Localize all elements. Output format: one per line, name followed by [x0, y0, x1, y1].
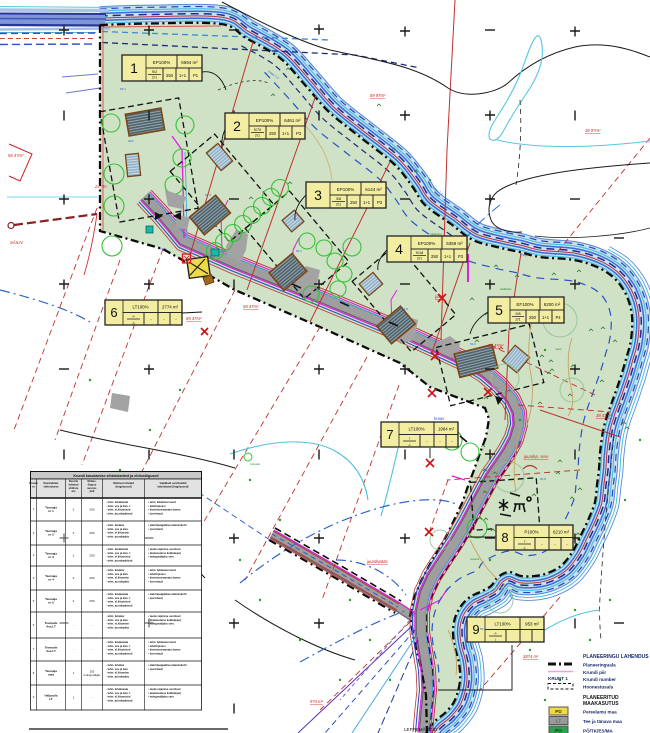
svg-text:58 47m²: 58 47m²	[243, 304, 259, 309]
svg-text:-: -	[73, 648, 74, 652]
svg-text:- tehn. juurdepääs: - tehn. juurdepääs	[106, 534, 130, 538]
svg-text:50.2: 50.2	[480, 627, 486, 631]
svg-text:2/1: 2/1	[417, 257, 422, 261]
svg-text:Suurim: Suurim	[69, 479, 79, 483]
svg-text:6461 m²: 6461 m²	[284, 118, 301, 123]
svg-text:• tehn. lubatava toend: • tehn. lubatava toend	[148, 500, 176, 504]
svg-text:250: 250	[89, 599, 94, 603]
svg-text:• teede rajamise servituut: • teede rajamise servituut	[148, 614, 181, 618]
svg-text:• elektripaigaldise talumiskoh: • elektripaigaldise talumiskoht	[148, 592, 187, 596]
svg-text:- tehn. juurdepääs: - tehn. juurdepääs	[106, 674, 130, 678]
svg-text:6144 m²: 6144 m²	[365, 187, 382, 192]
svg-text:• elektripaigaldise talumiskoh: • elektripaigaldise talumiskoht	[148, 663, 187, 667]
svg-text:Pereelamu maa: Pereelamu maa	[583, 710, 617, 715]
svg-text:- tehn. lubatavate: - tehn. lubatavate	[106, 687, 129, 691]
svg-text:-: -	[92, 648, 93, 652]
svg-text:• (servituut): • (servituut)	[148, 651, 163, 655]
svg-text:P3: P3	[296, 131, 302, 136]
svg-text:PLANEERINGU LAHENDUS: PLANEERINGU LAHENDUS	[583, 654, 649, 660]
svg-text:P1: P1	[193, 73, 199, 78]
svg-text:1+1: 1+1	[363, 200, 371, 205]
svg-text:• (teekasutuse kokkulepe): • (teekasutuse kokkulepe)	[148, 618, 181, 622]
svg-text:SÄILIV: SÄILIV	[10, 240, 24, 245]
svg-text:- tehn. lubatav: - tehn. lubatav	[106, 523, 125, 527]
svg-text:• kinnistusraamatu kanne: • kinnistusraamatu kanne	[148, 576, 181, 580]
svg-text:PD: PD	[555, 709, 562, 714]
svg-text:säilitatav: säilitatav	[500, 287, 512, 291]
svg-text:• mänguväljaku serv.: • mänguväljaku serv.	[148, 622, 175, 626]
svg-text:• mänguväljaku serv.: • mänguväljaku serv.	[148, 555, 175, 559]
svg-text:LEPPEMÄRGID: LEPPEMÄRGID	[404, 726, 438, 732]
svg-text:Krundi kasutamise sihtotstarbe: Krundi kasutamise sihtotstarbed ja ehitu…	[73, 474, 158, 478]
svg-text:2/1: 2/1	[255, 134, 260, 138]
svg-text:- tehn. lubatav: - tehn. lubatav	[106, 568, 125, 572]
svg-text:Tee ja tänava maa: Tee ja tänava maa	[583, 719, 622, 724]
svg-text:6594 m²: 6594 m²	[181, 60, 198, 65]
svg-text:mets: mets	[555, 347, 562, 351]
svg-text:• tuletõrjevesi: • tuletõrjevesi	[148, 504, 166, 508]
svg-text:järk: järk	[89, 489, 95, 493]
svg-text:- tehn. vee ja kan.: - tehn. vee ja kan.	[106, 527, 129, 531]
svg-text:MAAKASUTUS: MAAKASUTUS	[583, 701, 619, 707]
svg-text:-/-: -/-	[132, 320, 136, 325]
svg-text:6210 m²: 6210 m²	[553, 530, 570, 535]
svg-text:1+1: 1+1	[282, 131, 290, 136]
svg-text:9: 9	[472, 622, 479, 637]
svg-text:Krundi piir: Krundi piir	[583, 670, 606, 675]
svg-text:250: 250	[89, 576, 94, 580]
svg-text:ehitiste: ehitiste	[69, 486, 79, 490]
svg-text:pääs: pääs	[434, 294, 445, 299]
svg-text:- tehn. vee ja kan. l.: - tehn. vee ja kan. l.	[106, 504, 131, 508]
svg-text:nr 5: nr 5	[48, 601, 54, 605]
svg-text:LT100%: LT100%	[132, 305, 148, 310]
svg-text:suurus-: suurus-	[87, 486, 97, 490]
svg-text:2774 m²: 2774 m²	[162, 305, 179, 310]
svg-text:• tehn. lubatava toend: • tehn. lubatava toend	[148, 568, 176, 572]
svg-text:- tehn. lubatavate: - tehn. lubatavate	[106, 500, 129, 504]
svg-text:5359 m²: 5359 m²	[446, 241, 463, 246]
svg-text:• tuletõrjevesi: • tuletõrjevesi	[148, 572, 166, 576]
svg-text:- tehn. vee ja kan. l.: - tehn. vee ja kan. l.	[106, 596, 131, 600]
svg-text:5: 5	[495, 302, 503, 318]
svg-text:Ehitus-: Ehitus-	[87, 479, 96, 483]
svg-text:Hoonestusala: Hoonestusala	[583, 685, 614, 690]
svg-text:P4: P4	[555, 315, 561, 320]
svg-text:58 4?m²: 58 4?m²	[8, 153, 24, 158]
svg-text:-: -	[92, 696, 93, 700]
svg-text:LT: LT	[49, 697, 53, 701]
svg-text:Kavandatav: Kavandatav	[43, 481, 59, 485]
svg-text:8: 8	[501, 530, 508, 545]
svg-text:EP100%: EP100%	[418, 241, 436, 246]
svg-text:- tehn. el.liitumine: - tehn. el.liitumine	[106, 531, 129, 535]
svg-text:250: 250	[431, 254, 439, 259]
svg-text:3/8: 3/8	[336, 197, 341, 201]
svg-text:89 47m²: 89 47m²	[186, 316, 202, 321]
svg-text:Vajalikud servituudid: Vajalikud servituudid	[160, 481, 187, 485]
svg-text:4: 4	[395, 241, 403, 257]
svg-text:-/-: -/-	[494, 631, 498, 636]
svg-text:LT: LT	[556, 719, 561, 724]
svg-text:250: 250	[166, 73, 174, 78]
svg-text:puisniit: puisniit	[470, 557, 480, 561]
svg-text:3: 3	[314, 187, 322, 203]
svg-text:• tehn. lubatava toend: • tehn. lubatava toend	[148, 640, 176, 644]
svg-text:250: 250	[90, 670, 95, 674]
svg-text:• (servituut): • (servituut)	[148, 667, 163, 671]
svg-text:250: 250	[89, 554, 94, 558]
svg-text:- tehn. el.liitumine: - tehn. el.liitumine	[106, 576, 129, 580]
svg-text:LT100%: LT100%	[494, 622, 510, 627]
svg-text:õiguse: õiguse	[88, 482, 97, 486]
svg-text:-/-: -/-	[408, 442, 412, 447]
svg-text:50.9: 50.9	[540, 477, 546, 481]
svg-text:7: 7	[386, 427, 393, 442]
svg-text:9/18: 9/18	[416, 251, 423, 255]
svg-text:nr 2: nr 2	[48, 533, 54, 537]
svg-text:9/2: 9/2	[152, 70, 157, 74]
svg-text:- tehn. el.liitumised: - tehn. el.liitumised	[106, 648, 131, 652]
svg-text:6: 6	[110, 305, 117, 320]
svg-text:• (teekasutuse kokkulepe): • (teekasutuse kokkulepe)	[148, 551, 181, 555]
svg-text:- tehn. vee ja kan. l.: - tehn. vee ja kan. l.	[106, 644, 131, 648]
svg-text:juurdep. serv: juurdep. serv	[523, 454, 549, 459]
svg-text:- tehn. juurdepääsud: - tehn. juurdepääsud	[106, 603, 133, 607]
svg-text:- tehn. juurdepääs: - tehn. juurdepääs	[106, 625, 130, 629]
svg-text:53.1: 53.1	[120, 87, 126, 91]
svg-text:6200 m²: 6200 m²	[544, 302, 561, 307]
svg-text:• kinnistusraamatu kanne: • kinnistusraamatu kanne	[148, 508, 181, 512]
svg-text:- tehn. el.liitumised: - tehn. el.liitumised	[106, 695, 131, 699]
svg-text:38 9?m²: 38 9?m²	[585, 128, 601, 133]
svg-text:P3: P3	[377, 200, 383, 205]
svg-text:Olulised nõuded: Olulised nõuded	[113, 481, 134, 485]
svg-text:52.3: 52.3	[205, 193, 211, 197]
svg-text:9/8: 9/8	[515, 312, 520, 316]
svg-text:-/-: -/-	[132, 314, 136, 319]
svg-text:- tehn. lubatavate: - tehn. lubatavate	[106, 640, 129, 644]
svg-text:- tehn. vee ja kan.: - tehn. vee ja kan.	[106, 667, 129, 671]
svg-text:24 ?m: 24 ?m	[94, 184, 107, 189]
svg-text:- tehn. vee ja kan.: - tehn. vee ja kan.	[106, 618, 129, 622]
svg-text:- tehn. vee ja kan.: - tehn. vee ja kan.	[106, 572, 129, 576]
svg-text:EP100%: EP100%	[337, 187, 355, 192]
svg-text:- tehn. juurdepääsud: - tehn. juurdepääsud	[106, 558, 133, 562]
svg-text:Planeeringuala: Planeeringuala	[583, 663, 616, 668]
svg-text:- tehn. juurdepääsud: - tehn. juurdepääsud	[106, 651, 133, 655]
svg-text:• (servituut): • (servituut)	[148, 579, 163, 583]
svg-text:-/-: -/-	[523, 545, 527, 550]
svg-text:2/1: 2/1	[336, 203, 341, 207]
svg-text:- tehn. el.liitumised: - tehn. el.liitumised	[106, 555, 131, 559]
svg-text:EP100%: EP100%	[153, 60, 171, 65]
svg-text:• (teekasutuse kokkulepe): • (teekasutuse kokkulepe)	[148, 691, 181, 695]
svg-text:täiendavad (tingimused): täiendavad (tingimused)	[158, 484, 189, 488]
svg-text:- tehn. el.liitumine: - tehn. el.liitumine	[106, 671, 129, 675]
svg-text:- tehn. juurdepääsud: - tehn. juurdepääsud	[106, 698, 133, 702]
svg-text:953 m²: 953 m²	[525, 622, 539, 627]
svg-text:• (servituut): • (servituut)	[148, 511, 163, 515]
svg-text:nr: nr	[32, 484, 35, 488]
svg-text:250: 250	[350, 200, 358, 205]
svg-text:9?4 m²: 9?4 m²	[310, 699, 324, 704]
svg-text:89 97m²: 89 97m²	[370, 93, 386, 98]
svg-text:- tehn. juurdepääs: - tehn. juurdepääs	[106, 579, 130, 583]
svg-text:- tehn. vee ja kan. l.: - tehn. vee ja kan. l.	[106, 691, 131, 695]
svg-text:- tehn. lubatavate: - tehn. lubatavate	[106, 592, 129, 596]
svg-text:250: 250	[89, 531, 94, 535]
svg-text:1+1: 1+1	[444, 254, 452, 259]
svg-text:51.8: 51.8	[402, 307, 408, 311]
svg-text:- tehn. lubatavate: - tehn. lubatavate	[106, 547, 129, 551]
svg-text:38?4 m²: 38?4 m²	[523, 654, 539, 659]
svg-text:maa: maa	[48, 673, 54, 677]
svg-text:250: 250	[529, 315, 537, 320]
svg-text:(mänguväljak): (mänguväljak)	[84, 673, 101, 677]
svg-text:nr 1: nr 1	[48, 509, 54, 513]
svg-text:- tehn. el.liitumised: - tehn. el.liitumised	[106, 600, 131, 604]
svg-text:PÕ/TK/ES/MA: PÕ/TK/ES/MA	[583, 728, 614, 733]
svg-text:52.1: 52.1	[296, 249, 302, 253]
svg-text:- tehn. el.liitumine: - tehn. el.liitumine	[106, 622, 129, 626]
svg-text:2/1: 2/1	[152, 76, 157, 80]
svg-text:• (servituut): • (servituut)	[148, 527, 163, 531]
svg-text:Ava LT: Ava LT	[46, 625, 56, 629]
svg-text:abih: abih	[128, 139, 134, 143]
svg-text:• teede rajamise servituut: • teede rajamise servituut	[148, 547, 181, 551]
svg-text:kraav: kraav	[434, 416, 445, 421]
svg-text:• teede rajamise servituut: • teede rajamise servituut	[148, 687, 181, 691]
svg-text:-: -	[92, 623, 93, 627]
svg-text:• kinnistusraamatu kanne: • kinnistusraamatu kanne	[148, 648, 181, 652]
svg-text:PO: PO	[555, 728, 562, 733]
svg-text:2/1: 2/1	[515, 318, 520, 322]
svg-text:• mänguväljaku serv.: • mänguväljaku serv.	[148, 695, 175, 699]
svg-text:Ava LT: Ava LT	[46, 649, 56, 653]
svg-text:250: 250	[89, 508, 94, 512]
svg-text:KRUNT 1: KRUNT 1	[548, 676, 568, 681]
svg-text:• tuletõrjevesi: • tuletõrjevesi	[148, 644, 166, 648]
svg-text:9/70: 9/70	[254, 128, 261, 132]
svg-text:1: 1	[130, 60, 138, 76]
svg-text:1+1: 1+1	[179, 73, 187, 78]
svg-text:roheala: roheala	[250, 462, 260, 466]
svg-text:- tehn. lubatav: - tehn. lubatav	[106, 614, 125, 618]
svg-text:- tehn. vee ja kan. l.: - tehn. vee ja kan. l.	[106, 551, 131, 555]
svg-text:haljastus: haljastus	[430, 232, 442, 236]
svg-text:nr 3: nr 3	[48, 555, 54, 559]
svg-text:38 47m²: 38 47m²	[596, 413, 612, 418]
svg-text:P100%: P100%	[524, 530, 538, 535]
svg-text:250: 250	[269, 131, 277, 136]
svg-text:1984 m²: 1984 m²	[438, 427, 455, 432]
svg-text:- tehn. lubatav: - tehn. lubatav	[106, 663, 125, 667]
svg-text:1+1: 1+1	[542, 315, 550, 320]
svg-text:LT100%: LT100%	[408, 427, 424, 432]
svg-text:Krundi number: Krundi number	[583, 677, 616, 682]
svg-text:- tehn. juurdepääsud: - tehn. juurdepääsud	[106, 511, 133, 515]
svg-text:arv: arv	[71, 489, 76, 493]
svg-text:51.6: 51.6	[470, 342, 476, 346]
svg-text:• elektripaigaldise talumiskoh: • elektripaigaldise talumiskoht	[148, 523, 187, 527]
svg-text:98 4?m²: 98 4?m²	[488, 343, 504, 348]
svg-text:EP100%: EP100%	[256, 118, 274, 123]
svg-text:52.8: 52.8	[160, 247, 166, 251]
svg-text:sihtotstarve: sihtotstarve	[43, 484, 59, 488]
svg-text:-: -	[73, 623, 74, 627]
svg-text:- tehn. el.liitumised: - tehn. el.liitumised	[106, 508, 131, 512]
svg-text:2: 2	[233, 118, 241, 134]
svg-text:nr 4: nr 4	[48, 578, 54, 582]
svg-text:juurdepääs: juurdepääs	[366, 559, 389, 564]
svg-text:EF100%: EF100%	[516, 302, 533, 307]
svg-text:(tingimused): (tingimused)	[115, 484, 131, 488]
svg-text:lubatud: lubatud	[69, 482, 79, 486]
svg-text:P3: P3	[458, 254, 464, 259]
svg-text:• (servituut): • (servituut)	[148, 596, 163, 600]
